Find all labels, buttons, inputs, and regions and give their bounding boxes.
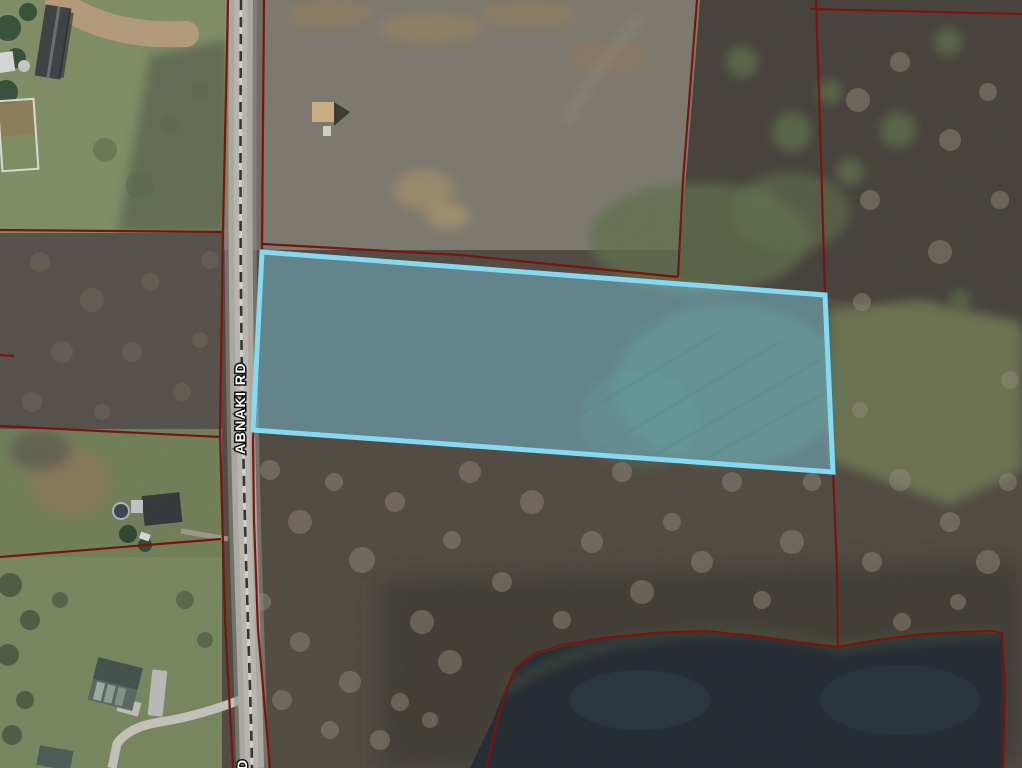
road-label-partial: D <box>234 758 250 768</box>
road-label-abnaki-rd: ABNAKI RD <box>232 362 248 454</box>
parcel-line <box>0 355 14 356</box>
aerial-parcel-map[interactable]: ABNAKI RD D <box>0 0 1022 768</box>
map-viewport[interactable]: ABNAKI RD D <box>0 0 1022 768</box>
